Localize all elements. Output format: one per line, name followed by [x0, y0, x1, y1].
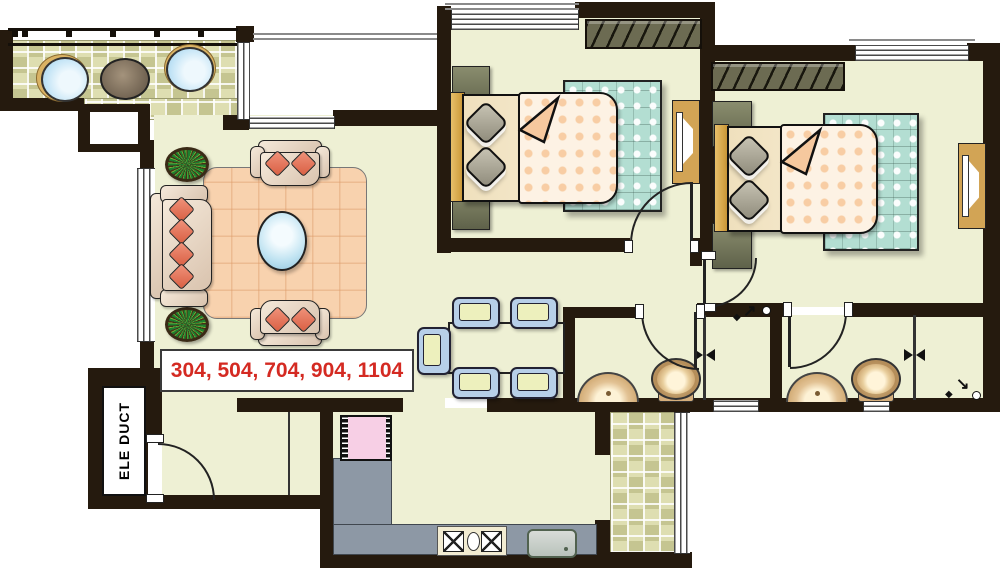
door-jamb: [696, 304, 705, 319]
exterior-ledge-line: [253, 38, 437, 40]
kitchen-balcony-opening: [595, 455, 610, 520]
wall: [236, 26, 254, 42]
chair-cushion: [517, 373, 549, 391]
window: [713, 400, 759, 412]
exterior-ledge-line: [849, 39, 975, 41]
wall: [563, 307, 640, 318]
fan-chair-icon: [41, 57, 89, 102]
door-jamb: [624, 240, 633, 253]
wall: [700, 45, 855, 61]
door-jamb: [783, 302, 792, 317]
exterior-ledge-line: [445, 3, 579, 5]
window: [237, 42, 250, 120]
wall: [437, 238, 630, 252]
bedroom1-door-leaf: [690, 182, 693, 240]
bedroom2-door-leaf: [703, 258, 706, 308]
chair-cushion: [517, 303, 549, 321]
blanket-fold: [512, 90, 564, 146]
wardrobe: [585, 19, 702, 49]
window: [249, 116, 335, 129]
ele-duct-label: ELE DUCT: [102, 386, 146, 496]
balcony-table-icon: [100, 58, 150, 100]
coffee-table-icon: [257, 211, 307, 271]
toilet-icon: [851, 358, 901, 400]
shower-point-icon: [972, 391, 981, 400]
burner-icon: [481, 531, 502, 552]
appliance-side: [386, 417, 390, 459]
wall: [967, 43, 983, 61]
dining-chair: [452, 367, 500, 399]
shower-arrow-icon: ↘: [956, 377, 969, 393]
wall: [575, 2, 707, 18]
wall: [333, 110, 441, 126]
door-jamb: [146, 434, 164, 443]
wall: [595, 520, 610, 554]
door-jamb: [701, 251, 716, 260]
sofa-armrest: [160, 289, 208, 307]
partition-pivot-icon: [916, 349, 925, 361]
door-jamb: [146, 494, 164, 503]
wardrobe: [711, 62, 845, 91]
balcony-railing: [8, 28, 238, 46]
chair-cushion: [423, 334, 441, 366]
shower-head-icon: ◆: [945, 390, 953, 400]
sink-icon: [527, 529, 577, 558]
chair-cushion: [459, 303, 491, 321]
foyer-kitchen-divider: [288, 412, 290, 495]
ele-duct-text: ELE DUCT: [116, 402, 132, 480]
partition-pivot-icon: [904, 349, 913, 361]
dining-chair: [510, 367, 558, 399]
stove-icon: [437, 526, 507, 556]
column-core: [90, 112, 138, 144]
dry-balcony-floor: [610, 412, 676, 554]
tv-icon: [676, 112, 683, 172]
unit-numbers-text: 304, 504, 704, 904, 1104: [171, 359, 403, 383]
wall: [320, 408, 333, 554]
unit-numbers-label: 304, 504, 704, 904, 1104: [160, 349, 414, 392]
shower-head-icon: ◆: [733, 313, 741, 323]
plant-icon: [165, 307, 209, 342]
wall: [237, 398, 333, 412]
partition-pivot-icon: [706, 349, 715, 361]
fan-chair-icon: [166, 47, 214, 92]
dining-chair: [510, 297, 558, 329]
chair-cushion: [459, 373, 491, 391]
exterior-ledge-line: [445, 8, 579, 10]
door-jamb: [690, 240, 699, 253]
burner-icon: [443, 531, 464, 552]
shower-point-icon: [762, 306, 771, 315]
window: [855, 45, 969, 61]
wall: [437, 6, 451, 253]
wall: [595, 398, 610, 455]
bathroom1-door-leaf: [694, 312, 697, 368]
dining-chair: [452, 297, 500, 329]
plant-icon: [165, 147, 209, 182]
door-jamb: [844, 302, 853, 317]
door-jamb: [635, 304, 644, 319]
stove-center: [467, 532, 480, 551]
bathroom2-door-leaf: [788, 312, 791, 367]
wall: [770, 303, 782, 402]
blanket-fold: [774, 122, 826, 178]
tv-icon: [962, 155, 969, 217]
dining-chair: [417, 327, 451, 375]
exterior-ledge-line: [253, 33, 437, 35]
shower-arrow-icon: ↗: [743, 304, 756, 320]
dry-balcony-window: [674, 412, 690, 554]
apartment-floor-plan: ◆ ↗ ◆ ↘ 304, 504, 704, 904, 1104 ELE DUC…: [0, 0, 1000, 568]
washing-machine-icon: [340, 415, 392, 461]
appliance-side: [342, 417, 348, 459]
window: [451, 10, 579, 30]
